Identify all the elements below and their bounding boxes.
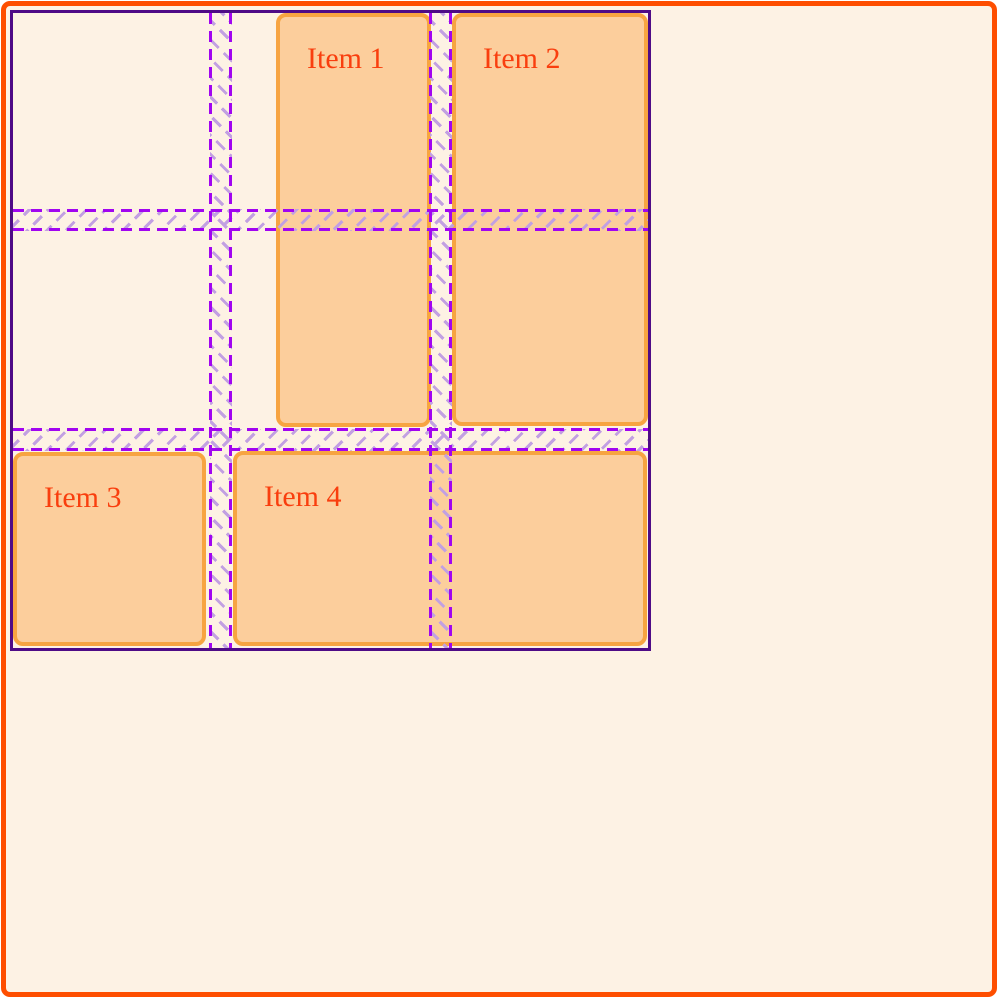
grid-item-4: Item 4 xyxy=(233,451,647,646)
grid-item-2-label: Item 2 xyxy=(483,42,560,75)
grid-gap-column-1 xyxy=(210,13,232,648)
grid-item-2: Item 2 xyxy=(452,13,648,426)
grid-item-1-label: Item 1 xyxy=(307,42,384,75)
grid-item-3: Item 3 xyxy=(13,452,206,646)
grid-item-1: Item 1 xyxy=(276,13,431,427)
page-container: Item 1 Item 2 Item 3 Item 4 xyxy=(1,1,997,997)
grid-line-col-1-right xyxy=(229,13,232,648)
grid-line-row-2-top xyxy=(13,428,648,431)
grid-item-3-label: Item 3 xyxy=(44,481,121,514)
page: Item 1 Item 2 Item 3 Item 4 xyxy=(0,0,1000,1000)
grid-item-4-label: Item 4 xyxy=(264,480,341,513)
grid-gap-row-2 xyxy=(13,429,648,451)
grid-line-col-1-left xyxy=(209,13,212,648)
